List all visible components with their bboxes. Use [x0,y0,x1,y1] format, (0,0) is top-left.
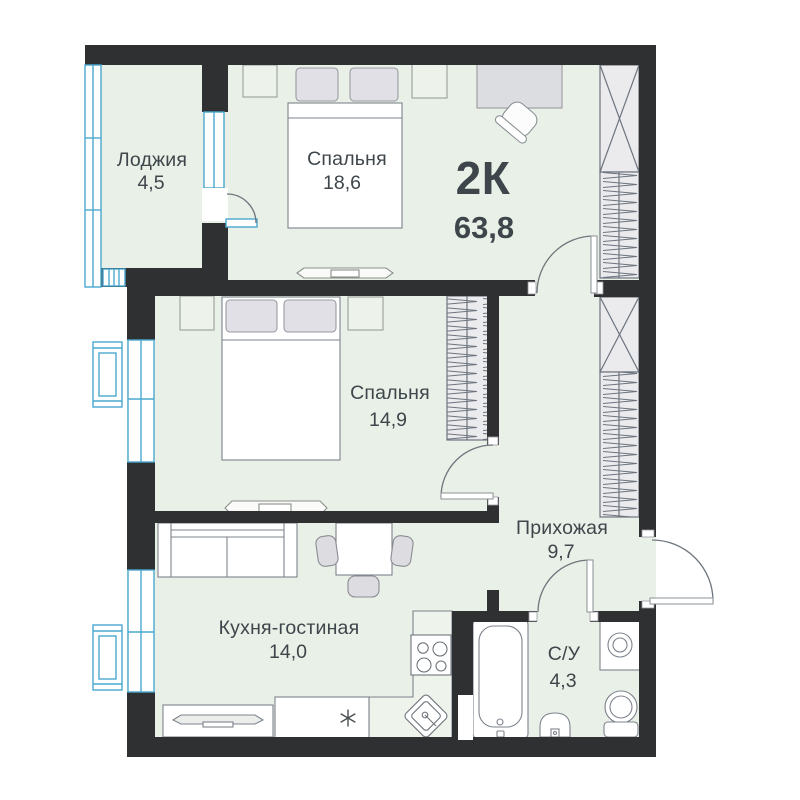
apartment-total-area: 63,8 [454,210,514,245]
kitchen-window-casement [93,625,122,690]
room-area: 18,6 [323,172,361,194]
bedroom1-window [204,112,224,188]
entrance-door-arc [652,540,713,601]
desk-icon [477,64,562,108]
wall-bathroom-left-sliver [452,695,458,740]
pillow-icon [226,300,277,332]
wall-bottom [127,737,656,757]
bathtub-icon [473,620,528,738]
wardrobe-hangers-bedroom2-icon [447,296,488,440]
room-label: С/У [548,643,581,665]
washing-machine-icon [600,620,643,670]
nightstand-icon [348,297,383,330]
nightstand-icon [243,65,277,97]
room-label: Спальня [307,148,387,170]
wall-right-upper [639,45,656,537]
room-area: 4,5 [137,172,164,194]
wall-loggia-separator [202,65,228,112]
chair-icon [348,576,379,597]
wall-right-lower [639,601,656,757]
room-label: Спальня [350,382,430,404]
bedroom2-window-casement [93,342,122,407]
chair-icon [390,535,414,567]
room-area: 9,7 [547,541,574,563]
kitchen-window [128,570,154,692]
room-area: 14,9 [369,409,407,431]
nightstand-icon [180,296,214,330]
wall-left [127,692,155,745]
bedroom1-door-leaf [591,236,597,293]
chair-icon [315,535,339,567]
kitchen-counter-segment [275,697,369,740]
nightstand-icon [412,64,447,98]
apartment-type-label: 2К [456,152,511,204]
pillow-icon [296,68,338,101]
bathroom-door-leaf [587,560,593,612]
dresser-icon [297,268,393,278]
wall-top [85,45,656,65]
wall-bedroom2-kitchen [155,511,499,523]
loggia-sill-detail [103,269,125,286]
wardrobe-hangers-hallway-icon [600,372,639,517]
room-label: Кухня-гостиная [219,617,360,639]
toilet-icon [604,691,638,737]
wall-bedrooms [155,280,535,296]
floor-plan-page: Лоджия 4,5 Спальня 18,6 2К 63,8 Спальня … [0,0,800,800]
bedroom2-door-leaf [441,493,493,499]
room-label: Лоджия [117,149,187,171]
pillow-icon [350,68,398,101]
floor-plan: Лоджия 4,5 Спальня 18,6 2К 63,8 Спальня … [0,0,800,800]
wall-bedroom2-hall [487,296,499,445]
room-label: Прихожая [516,517,608,539]
dining-table-icon [336,523,392,575]
wardrobe-x-bedroom1-icon [600,65,639,172]
washbasin-icon [540,713,570,737]
tv-stand-icon [163,705,273,737]
pillow-icon [284,300,336,332]
room-area: 14,0 [269,641,307,663]
sofa-icon [158,523,297,577]
entrance-door-leaf [650,598,713,604]
wall-loggia-separator [202,223,228,268]
loggia-glazing [85,65,101,287]
room-area: 4,3 [549,670,576,692]
bedroom2-window [128,340,154,462]
stove-icon [411,635,451,675]
duct-niche [458,695,473,740]
wall-bathroom-left [452,611,473,695]
wardrobe-hangers-bedroom1-icon [600,172,639,278]
wardrobe-x-hallway-icon [600,297,639,372]
wall-left [127,462,155,570]
